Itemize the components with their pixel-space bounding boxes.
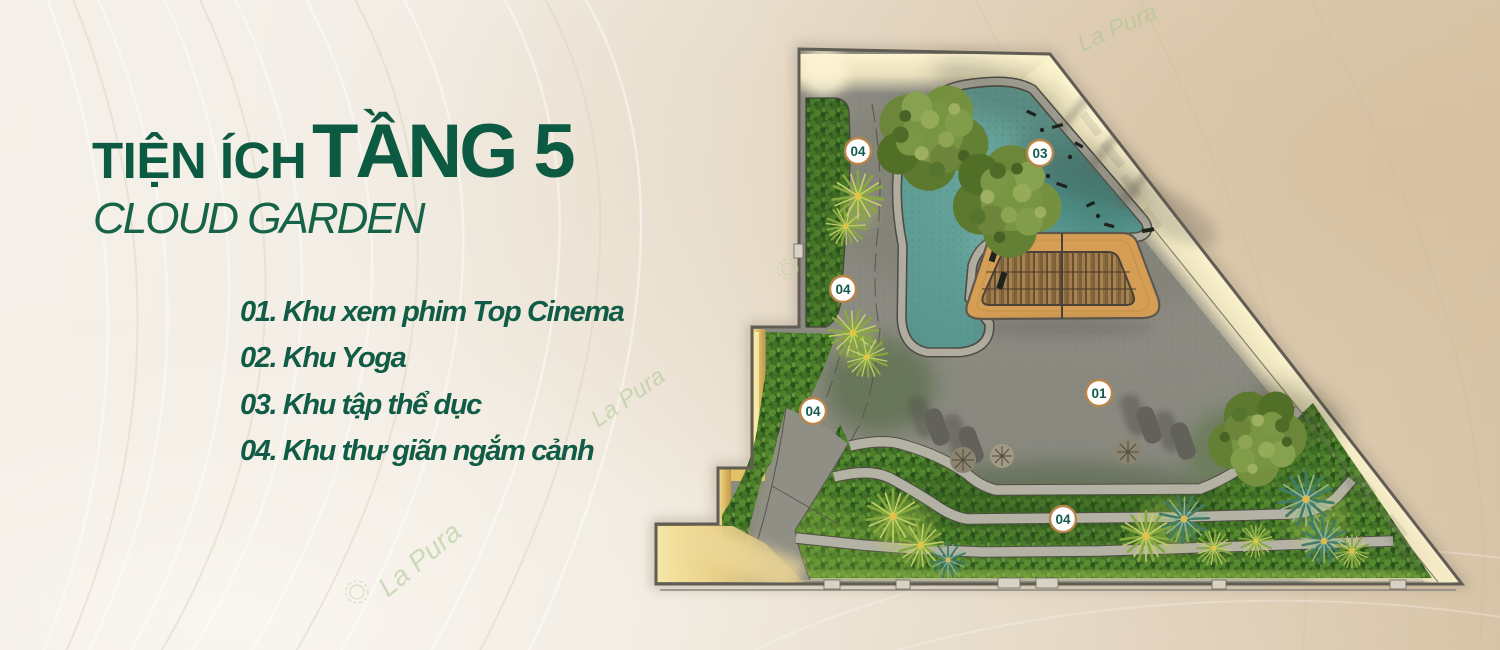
svg-text:04: 04 <box>1055 512 1071 527</box>
svg-text:04: 04 <box>835 282 851 297</box>
svg-text:03: 03 <box>1032 146 1048 161</box>
svg-text:La Pura: La Pura <box>372 516 467 603</box>
svg-text:01: 01 <box>1091 386 1107 401</box>
svg-text:04: 04 <box>850 144 866 159</box>
svg-text:04: 04 <box>805 404 821 419</box>
svg-text:La Pura: La Pura <box>1073 0 1161 57</box>
svg-text:La Pura: La Pura <box>586 363 670 433</box>
